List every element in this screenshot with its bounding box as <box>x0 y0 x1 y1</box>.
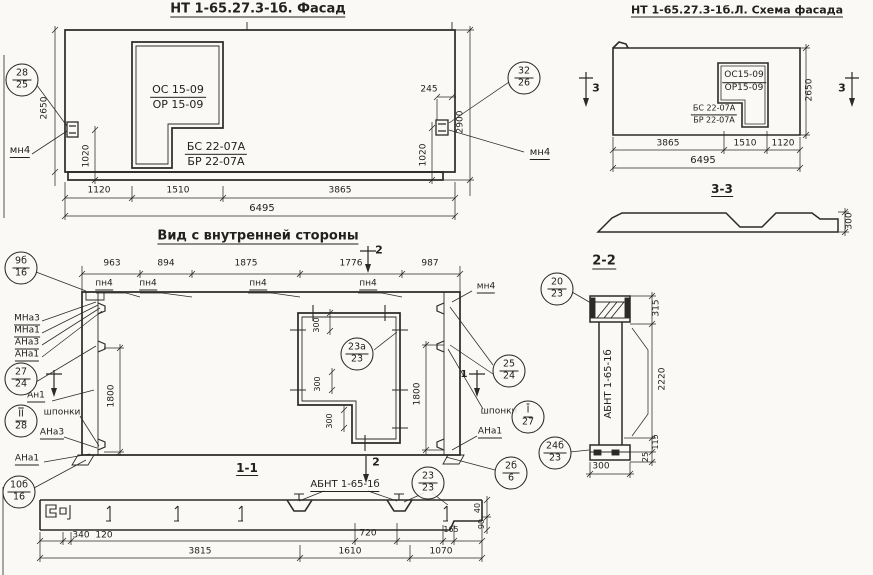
section-1-1-title: 1-1 <box>236 462 258 476</box>
dim-300-section22: 300 <box>592 463 609 472</box>
schema-door-mark-bottom: БР 22-07А <box>691 115 737 125</box>
label-mna3-top: МНа3 <box>14 315 40 326</box>
dim-720-section11: 720 <box>359 530 376 539</box>
dim-300-section33: 300 <box>846 212 855 229</box>
dim-1120-facade: 1120 <box>88 187 111 196</box>
callout-28-25-bottom: 25 <box>16 81 28 92</box>
callout-23-23: 2323 <box>412 467 445 500</box>
dim-25-section22: 25 <box>642 452 650 462</box>
label-shponki-left: шпонки <box>44 409 81 418</box>
dim-6495-facade: 6495 <box>249 204 274 214</box>
callout-24b-23: 24б23 <box>539 437 572 470</box>
callout-II-28: II28 <box>5 405 38 438</box>
section-mark-3-right: 3 <box>838 83 846 94</box>
callout-I-27-bottom: 27 <box>522 418 534 429</box>
dim-300-opening-3: 300 <box>326 413 334 428</box>
label-an1: Ан1 <box>27 392 45 403</box>
anchor-label-mn4-interior: мн4 <box>477 283 495 294</box>
callout-27-24: 2724 <box>5 363 38 396</box>
dim-1776-interior: 1776 <box>340 260 363 269</box>
interior-title: Вид с внутренней стороны <box>157 230 358 245</box>
callout-9b-16-bottom: 16 <box>15 269 27 280</box>
callout-24b-23-bottom: 23 <box>549 454 561 465</box>
dim-1510-facade: 1510 <box>167 187 190 196</box>
schema-door-mark-top: БС 22-07А <box>691 103 737 115</box>
label-ana1-top: АНа1 <box>15 351 39 362</box>
callout-25-24-bottom: 24 <box>503 372 515 383</box>
dim-2650-facade: 2650 <box>41 97 50 120</box>
facade-door-mark-top: БС 22-07А <box>185 140 247 155</box>
anchor-label-mn4-right: мн4 <box>530 148 550 160</box>
dim-1020-facade-left: 1020 <box>83 145 92 168</box>
schema-window-mark: ОС15-09ОР15-09 <box>722 70 766 94</box>
callout-23a-23: 23а23 <box>341 338 374 371</box>
facade-window-mark: ОС 15-09ОР 15-09 <box>150 83 206 111</box>
callout-28-25: 2825 <box>6 64 39 97</box>
dim-340-section11: 340 <box>72 532 89 541</box>
facade-window-mark-bottom: ОР 15-09 <box>150 98 206 111</box>
dim-165-section11: 165 <box>443 526 458 534</box>
dim-963-interior: 963 <box>103 260 120 269</box>
callout-9b-16: 9б16 <box>5 252 38 285</box>
dim-115-section22: 115 <box>652 434 660 449</box>
joint-label-pn4-3: пн4 <box>249 280 267 291</box>
dim-3865-facade: 3865 <box>329 187 352 196</box>
dim-40-section11: 40 <box>474 503 482 513</box>
dim-6495-schema: 6495 <box>690 156 715 166</box>
section-mark-1-right: 1 <box>461 370 468 380</box>
dim-1020-facade-right: 1020 <box>420 144 429 167</box>
callout-23-23-bottom: 23 <box>422 484 434 495</box>
section-mark-3-left: 3 <box>592 83 600 94</box>
callout-10b-16-bottom: 16 <box>13 493 25 504</box>
section-2-2-title: 2-2 <box>592 255 616 270</box>
dim-315-section22: 315 <box>653 299 662 316</box>
dim-1510-schema: 1510 <box>734 140 757 149</box>
drawing-sheet: НТ 1-65.27.3-1б. ФасадОС 15-09ОР 15-09БС… <box>0 0 873 575</box>
dim-2220-section22: 2220 <box>659 368 668 391</box>
label-mna1-top: МНа1 <box>14 327 40 338</box>
callout-25-24: 2524 <box>493 355 526 388</box>
dim-3865-schema: 3865 <box>657 140 680 149</box>
facade-title: НТ 1-65.27.3-1б. Фасад <box>170 3 345 18</box>
facade-door-mark-bottom: БР 22-07А <box>185 155 247 168</box>
schema-door-mark: БС 22-07АБР 22-07А <box>691 103 737 124</box>
callout-2b-6: 2б6 <box>495 457 528 490</box>
section-mark-2-bottom: 2 <box>372 457 380 468</box>
dim-2900-facade: 2900 <box>457 111 466 134</box>
dim-90-section11: 90 <box>478 519 486 529</box>
callout-20-23-bottom: 23 <box>551 290 563 301</box>
dim-894-interior: 894 <box>157 260 174 269</box>
callout-32-26: 3226 <box>508 62 541 95</box>
schema-title: НТ 1-65.27.3-1б.Л. Схема фасада <box>631 5 843 18</box>
label-abnt-section11: АБНТ 1-65-1б <box>310 480 379 492</box>
dim-245-facade: 245 <box>420 86 437 95</box>
annotation-layer: НТ 1-65.27.3-1б. ФасадОС 15-09ОР 15-09БС… <box>0 0 873 575</box>
section-3-3-title: 3-3 <box>711 183 733 197</box>
dim-3815-section11: 3815 <box>189 548 212 557</box>
schema-window-mark-top: ОС15-09 <box>722 70 766 83</box>
dim-1610-section11: 1610 <box>339 548 362 557</box>
label-ana3-bottom: АНа3 <box>40 429 64 440</box>
callout-10b-16: 10б16 <box>3 476 36 509</box>
callout-2b-6-bottom: 6 <box>508 474 514 485</box>
joint-label-pn4-4: пн4 <box>359 280 377 291</box>
dim-1120-schema: 1120 <box>772 140 795 149</box>
dim-1800-right: 1800 <box>414 383 423 406</box>
label-abnt-section22: АБНТ 1-65-1б <box>604 349 614 418</box>
dim-1070-section11: 1070 <box>430 548 453 557</box>
dim-987-interior: 987 <box>421 260 438 269</box>
label-ana3-top: АНа3 <box>15 339 39 350</box>
callout-II-28-bottom: 28 <box>15 422 27 433</box>
facade-window-mark-top: ОС 15-09 <box>150 83 206 98</box>
schema-window-mark-bottom: ОР15-09 <box>722 83 766 94</box>
dim-300-opening-1: 300 <box>313 317 321 332</box>
facade-door-mark: БС 22-07АБР 22-07А <box>185 140 247 168</box>
callout-20-23: 2023 <box>541 273 574 306</box>
callout-27-24-bottom: 24 <box>15 380 27 391</box>
dim-300-opening-2: 300 <box>314 376 322 391</box>
joint-label-pn4-1: пн4 <box>95 280 113 291</box>
dim-2650-schema: 2650 <box>806 79 815 102</box>
label-ana1-right: АНа1 <box>478 428 502 439</box>
dim-120-section11: 120 <box>95 532 112 541</box>
dim-1800-left: 1800 <box>108 385 117 408</box>
callout-32-26-bottom: 26 <box>518 79 530 90</box>
callout-23a-23-bottom: 23 <box>351 355 363 366</box>
section-mark-2-top: 2 <box>375 245 383 256</box>
joint-label-pn4-2: пн4 <box>139 280 157 291</box>
label-ana1-bottom: АНа1 <box>15 455 39 466</box>
anchor-label-mn4-left: мн4 <box>10 146 30 158</box>
dim-1875-interior: 1875 <box>235 260 258 269</box>
callout-I-27: I27 <box>512 401 545 434</box>
